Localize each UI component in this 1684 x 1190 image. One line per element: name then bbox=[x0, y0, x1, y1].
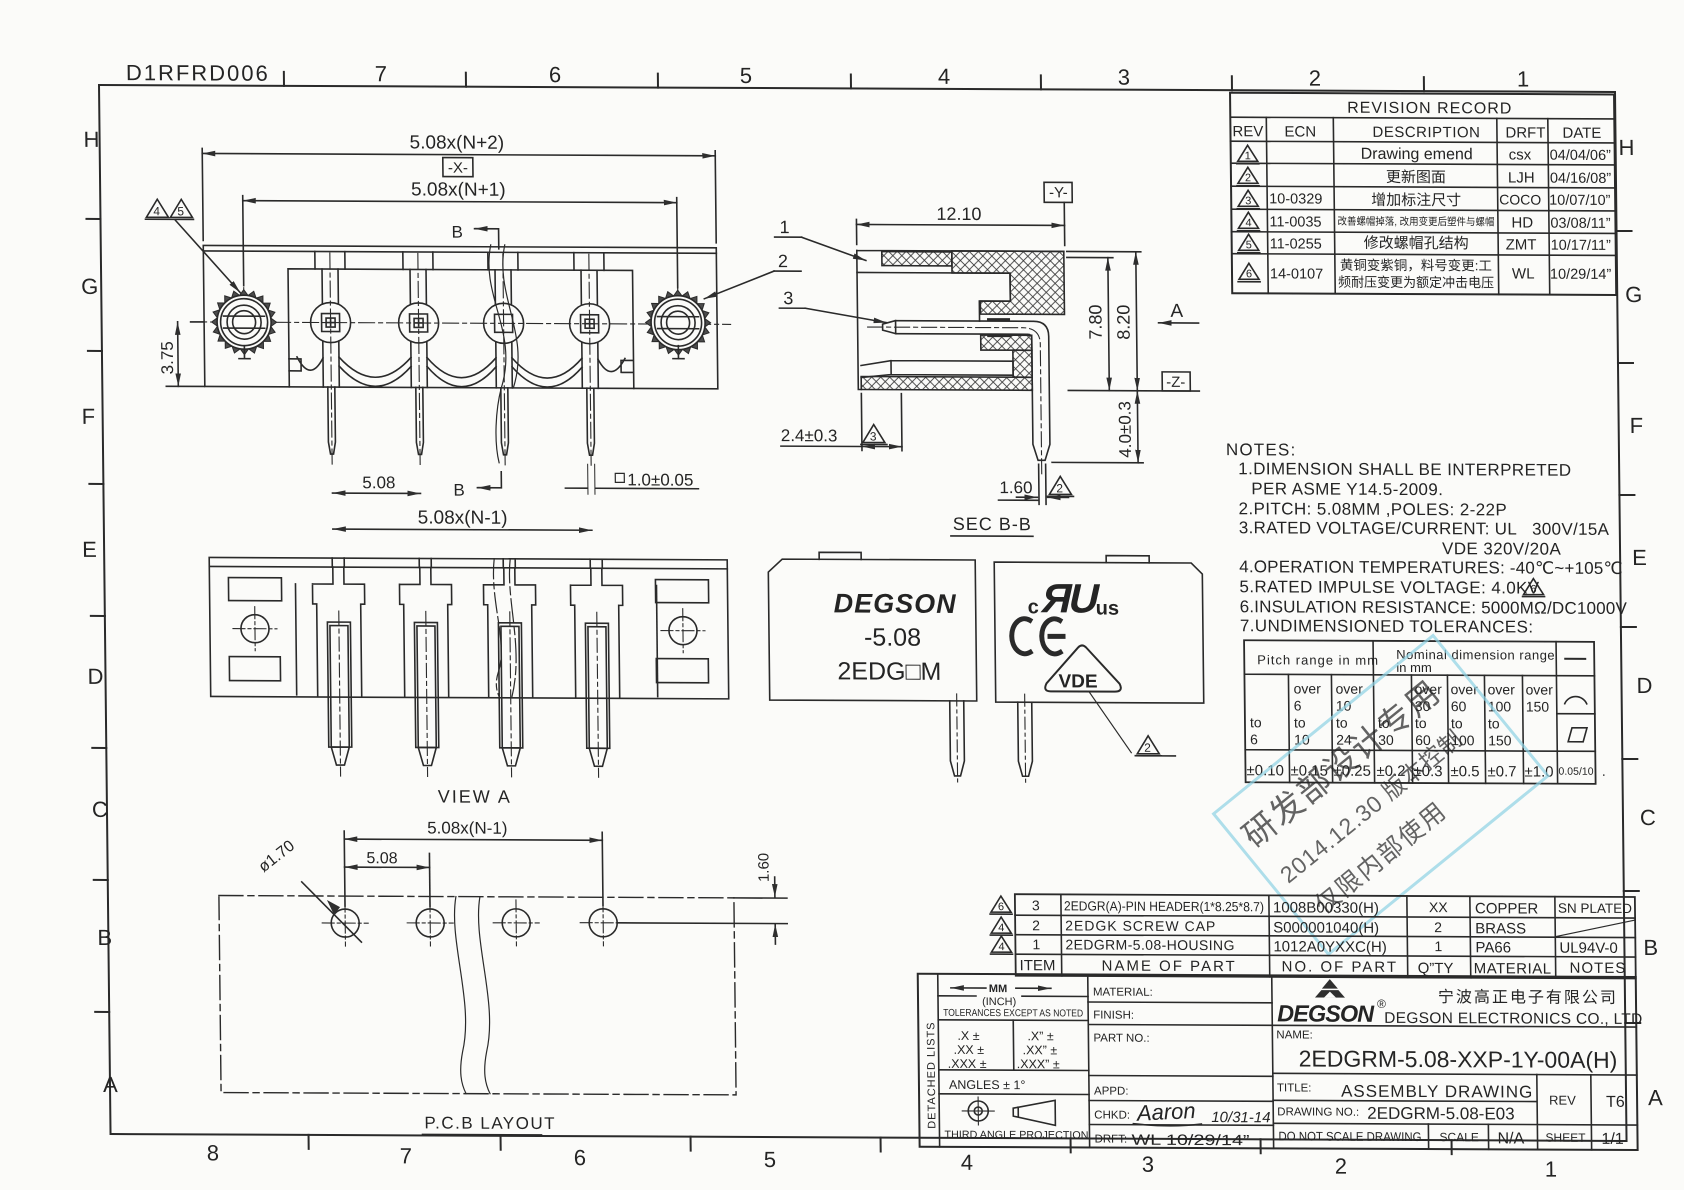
svg-text:ASSEMBLY DRAWING: ASSEMBLY DRAWING bbox=[1341, 1082, 1534, 1102]
svg-text:SHEET: SHEET bbox=[1545, 1131, 1586, 1145]
svg-text:ø1.70: ø1.70 bbox=[256, 837, 299, 876]
svg-text:A: A bbox=[1170, 301, 1183, 322]
svg-text:2EDGK SCREW CAP: 2EDGK SCREW CAP bbox=[1065, 917, 1216, 934]
svg-text:DESCRIPTION: DESCRIPTION bbox=[1372, 124, 1480, 141]
svg-text:DEGSON: DEGSON bbox=[1277, 1000, 1375, 1026]
svg-text:宁波高正电子有限公司: 宁波高正电子有限公司 bbox=[1438, 988, 1618, 1007]
svg-text:1: 1 bbox=[1545, 1157, 1558, 1182]
svg-text:4.OPERATION TEMPERATURES: -40: 4.OPERATION TEMPERATURES: -40℃~+105℃ bbox=[1239, 557, 1623, 578]
svg-text:(INCH): (INCH) bbox=[982, 996, 1016, 1008]
svg-text:5: 5 bbox=[740, 63, 753, 88]
svg-text:2EDGR(A)-PIN HEADER(1*8.25*8.7: 2EDGR(A)-PIN HEADER(1*8.25*8.7) bbox=[1064, 898, 1264, 914]
svg-text:6: 6 bbox=[1294, 697, 1302, 713]
svg-text:5.08x(N+2): 5.08x(N+2) bbox=[410, 132, 505, 153]
svg-text:ANGLES ± 1°: ANGLES ± 1° bbox=[949, 1078, 1026, 1092]
svg-text:SN PLATED: SN PLATED bbox=[1558, 901, 1632, 916]
svg-text:PER ASME Y14.5-2009.: PER ASME Y14.5-2009. bbox=[1251, 479, 1443, 499]
svg-text:over: over bbox=[1293, 680, 1321, 696]
svg-text:7.80: 7.80 bbox=[1085, 304, 1105, 339]
svg-text:2: 2 bbox=[1245, 172, 1251, 184]
svg-text:MATERIAL:: MATERIAL: bbox=[1093, 987, 1153, 999]
svg-text:VIEW A: VIEW A bbox=[438, 787, 512, 807]
svg-text:NAME:: NAME: bbox=[1276, 1029, 1313, 1041]
svg-text:7: 7 bbox=[375, 61, 388, 86]
svg-text:频耐压变更为额定冲击电压: 频耐压变更为额定冲击电压 bbox=[1338, 275, 1494, 291]
svg-text:更新图面: 更新图面 bbox=[1386, 169, 1446, 186]
svg-text:±0.5: ±0.5 bbox=[1450, 763, 1479, 780]
svg-text:4: 4 bbox=[998, 922, 1004, 934]
svg-text:B: B bbox=[451, 223, 463, 242]
svg-text:HD: HD bbox=[1511, 214, 1533, 231]
svg-text:to: to bbox=[1294, 714, 1306, 730]
svg-text:REV: REV bbox=[1549, 1093, 1576, 1108]
svg-text:增加标注尺寸: 增加标注尺寸 bbox=[1371, 192, 1461, 209]
svg-text:DETACHED LISTS: DETACHED LISTS bbox=[925, 1021, 938, 1128]
svg-text:®: ® bbox=[1377, 997, 1386, 1011]
svg-text:A: A bbox=[1648, 1085, 1663, 1110]
svg-text:WL: WL bbox=[1512, 265, 1535, 282]
svg-text:B: B bbox=[97, 925, 112, 950]
svg-text:H: H bbox=[1618, 135, 1634, 160]
svg-text:4: 4 bbox=[961, 1150, 974, 1175]
svg-text:XX: XX bbox=[1429, 899, 1449, 915]
svg-text:改善螺帽掉落, 改用变更后塑件与螺帽: 改善螺帽掉落, 改用变更后塑件与螺帽 bbox=[1337, 215, 1494, 229]
svg-text:2EDGRM-5.08-XXP-1Y-00A(H): 2EDGRM-5.08-XXP-1Y-00A(H) bbox=[1299, 1045, 1618, 1072]
svg-text:3.75: 3.75 bbox=[158, 341, 177, 374]
svg-text:3: 3 bbox=[1118, 65, 1131, 90]
svg-text:SCALE: SCALE bbox=[1439, 1130, 1479, 1144]
svg-text:6: 6 bbox=[1250, 731, 1258, 747]
svg-text:6: 6 bbox=[1530, 584, 1536, 596]
svg-text:C: C bbox=[1640, 805, 1656, 830]
svg-text:11-0255: 11-0255 bbox=[1270, 236, 1322, 252]
svg-text:1008B00330(H): 1008B00330(H) bbox=[1273, 899, 1379, 916]
svg-text:12.10: 12.10 bbox=[936, 204, 981, 224]
svg-text:over: over bbox=[1487, 681, 1515, 697]
svg-text:NOTES: NOTES bbox=[1570, 960, 1627, 977]
svg-text:5.08: 5.08 bbox=[366, 850, 397, 867]
svg-text:MATERIAL: MATERIAL bbox=[1474, 960, 1552, 977]
svg-text:D1RFRD006: D1RFRD006 bbox=[126, 60, 270, 86]
svg-text:11-0035: 11-0035 bbox=[1269, 214, 1321, 230]
svg-text:.X” ±: .X” ± bbox=[1027, 1029, 1054, 1043]
svg-text:8.20: 8.20 bbox=[1113, 305, 1133, 340]
svg-text:修改螺帽孔结构: 修改螺帽孔结构 bbox=[1364, 235, 1469, 252]
svg-text:2EDGRM-5.08-HOUSING: 2EDGRM-5.08-HOUSING bbox=[1065, 936, 1235, 953]
svg-text:4: 4 bbox=[1245, 217, 1251, 229]
svg-text:2: 2 bbox=[778, 251, 788, 271]
svg-text:3: 3 bbox=[1142, 1152, 1155, 1177]
svg-text:-Y-: -Y- bbox=[1049, 184, 1068, 201]
svg-text:5.08x(N-1): 5.08x(N-1) bbox=[427, 818, 508, 837]
svg-text:.XXX” ±: .XXX” ± bbox=[1017, 1057, 1060, 1071]
svg-text:6: 6 bbox=[998, 901, 1004, 913]
svg-text:±0.7: ±0.7 bbox=[1487, 763, 1516, 780]
svg-text:D: D bbox=[87, 664, 103, 689]
svg-text:DATE: DATE bbox=[1562, 125, 1601, 142]
svg-text:VDE 320V/20A: VDE 320V/20A bbox=[1442, 539, 1562, 559]
svg-text:2: 2 bbox=[1335, 1154, 1348, 1179]
svg-text:Drawing emend: Drawing emend bbox=[1361, 146, 1473, 164]
svg-text:A: A bbox=[103, 1072, 118, 1097]
svg-text:DEGSON: DEGSON bbox=[834, 588, 957, 619]
svg-text:1.DIMENSION SHALL BE INTERP: 1.DIMENSION SHALL BE INTERPRETED bbox=[1238, 459, 1572, 480]
svg-text:1: 1 bbox=[779, 217, 789, 237]
svg-text:6.INSULATION RESISTANCE: 5000: 6.INSULATION RESISTANCE: 5000MΩ/DC1000V bbox=[1240, 597, 1628, 618]
svg-text:3: 3 bbox=[870, 430, 877, 444]
svg-text:4: 4 bbox=[998, 941, 1004, 953]
svg-text:0.05/10: 0.05/10 bbox=[1558, 766, 1593, 778]
svg-text:NOTES:: NOTES: bbox=[1226, 440, 1297, 459]
svg-text:MM: MM bbox=[989, 983, 1007, 995]
svg-text:to: to bbox=[1336, 715, 1348, 731]
svg-text:7.UNDIMENSIONED TOLERANCES:: 7.UNDIMENSIONED TOLERANCES: bbox=[1240, 616, 1534, 636]
svg-text:5: 5 bbox=[177, 204, 184, 218]
svg-text:03/08/11”: 03/08/11” bbox=[1550, 216, 1611, 232]
svg-text:3: 3 bbox=[783, 288, 793, 308]
svg-text:NAME OF PART: NAME OF PART bbox=[1102, 958, 1237, 976]
svg-text:G: G bbox=[81, 274, 98, 299]
svg-text:5: 5 bbox=[764, 1147, 777, 1172]
svg-text:TOLERANCES EXCEPT AS NOTED: TOLERANCES EXCEPT AS NOTED bbox=[943, 1008, 1083, 1020]
svg-text:150: 150 bbox=[1488, 732, 1512, 748]
svg-text:04/04/06”: 04/04/06” bbox=[1550, 148, 1612, 164]
svg-text:2: 2 bbox=[1309, 66, 1322, 91]
svg-text:to: to bbox=[1488, 715, 1500, 731]
svg-text:us: us bbox=[1096, 598, 1120, 620]
svg-text:F: F bbox=[1630, 413, 1644, 438]
svg-text:2: 2 bbox=[1434, 919, 1442, 935]
svg-text:10-0329: 10-0329 bbox=[1269, 191, 1322, 207]
svg-text:.XX ±: .XX ± bbox=[953, 1043, 984, 1057]
svg-text:FINISH:: FINISH: bbox=[1093, 1010, 1134, 1022]
svg-text:-5.08: -5.08 bbox=[864, 623, 921, 651]
svg-text:4: 4 bbox=[938, 64, 951, 89]
svg-text:TITLE:: TITLE: bbox=[1277, 1082, 1312, 1094]
svg-text:COCO: COCO bbox=[1499, 191, 1541, 207]
svg-text:2: 2 bbox=[1032, 917, 1040, 933]
svg-text:Aaron: Aaron bbox=[1134, 1098, 1196, 1126]
svg-text:WL 10/29/14”: WL 10/29/14” bbox=[1131, 1132, 1249, 1150]
svg-text:E: E bbox=[82, 537, 97, 562]
svg-text:6: 6 bbox=[1246, 268, 1252, 280]
svg-text:Pitch range in mm: Pitch range in mm bbox=[1257, 652, 1379, 668]
svg-text:5.RATED IMPULSE VOLTAGE: 4.0: 5.RATED IMPULSE VOLTAGE: 4.0KV bbox=[1239, 577, 1540, 597]
svg-text:4.0±0.3: 4.0±0.3 bbox=[1115, 401, 1135, 458]
svg-text:P.C.B LAYOUT: P.C.B LAYOUT bbox=[424, 1113, 556, 1133]
svg-text:10/17/11”: 10/17/11” bbox=[1551, 238, 1612, 254]
svg-text:LJH: LJH bbox=[1508, 169, 1535, 186]
svg-text:5.08x(N-1): 5.08x(N-1) bbox=[418, 507, 508, 528]
svg-text:B: B bbox=[1643, 935, 1658, 960]
svg-text:COPPER: COPPER bbox=[1475, 900, 1539, 917]
svg-text:.XX” ±: .XX” ± bbox=[1022, 1043, 1057, 1057]
svg-text:6: 6 bbox=[574, 1145, 587, 1170]
svg-text:10/31-14: 10/31-14 bbox=[1211, 1109, 1270, 1126]
svg-text:黄铜变紫铜，料号变更:工: 黄铜变紫铜，料号变更:工 bbox=[1340, 258, 1492, 274]
svg-text:.XXX ±: .XXX ± bbox=[948, 1057, 987, 1071]
svg-text:S000001040(H): S000001040(H) bbox=[1273, 919, 1379, 936]
svg-text:2: 2 bbox=[1056, 481, 1063, 495]
svg-text:2.4±0.3: 2.4±0.3 bbox=[781, 426, 838, 445]
svg-text:5.08x(N+1): 5.08x(N+1) bbox=[411, 179, 506, 200]
svg-text:3.RATED VOLTAGE/CURRENT: UL: 3.RATED VOLTAGE/CURRENT: UL 300V/15A bbox=[1239, 518, 1610, 539]
svg-text:THIRD ANGLE PROJECTION: THIRD ANGLE PROJECTION bbox=[944, 1129, 1088, 1142]
svg-text:1012A0YXXC(H): 1012A0YXXC(H) bbox=[1273, 938, 1387, 956]
svg-text:SEC B-B: SEC B-B bbox=[953, 514, 1032, 534]
svg-text:DRFT: DRFT bbox=[1505, 124, 1545, 141]
svg-text:NO. OF PART: NO. OF PART bbox=[1282, 958, 1399, 976]
svg-text:PART NO.:: PART NO.: bbox=[1093, 1033, 1149, 1045]
svg-text:C: C bbox=[92, 797, 108, 822]
svg-text:3: 3 bbox=[1245, 195, 1251, 207]
svg-text:ITEM: ITEM bbox=[1020, 957, 1056, 974]
svg-text:to: to bbox=[1250, 714, 1262, 730]
svg-text:F: F bbox=[82, 404, 96, 429]
svg-text:·: · bbox=[1601, 766, 1606, 782]
svg-text:8: 8 bbox=[207, 1140, 220, 1165]
svg-text:1: 1 bbox=[1517, 67, 1530, 92]
svg-text:E: E bbox=[1632, 545, 1647, 570]
svg-text:csx: csx bbox=[1509, 146, 1532, 163]
svg-text:VDE: VDE bbox=[1058, 671, 1097, 692]
svg-text:APPD:: APPD: bbox=[1094, 1086, 1129, 1098]
svg-text:1.60: 1.60 bbox=[999, 478, 1032, 497]
svg-text:10/07/10”: 10/07/10” bbox=[1549, 193, 1611, 209]
svg-text:UL94V-0: UL94V-0 bbox=[1559, 940, 1618, 957]
svg-text:H: H bbox=[83, 127, 99, 152]
svg-text:14-0107: 14-0107 bbox=[1270, 266, 1323, 282]
svg-text:over: over bbox=[1525, 682, 1553, 698]
svg-text:.X ±: .X ± bbox=[957, 1029, 979, 1043]
svg-text:3: 3 bbox=[1032, 897, 1040, 913]
svg-text:6: 6 bbox=[549, 62, 562, 87]
svg-text:CHKD:: CHKD: bbox=[1094, 1110, 1130, 1122]
svg-text:7: 7 bbox=[400, 1143, 413, 1168]
svg-text:1: 1 bbox=[1434, 938, 1442, 954]
svg-text:5.08: 5.08 bbox=[362, 473, 395, 492]
svg-text:4: 4 bbox=[153, 204, 160, 218]
svg-text:ECN: ECN bbox=[1284, 123, 1316, 140]
svg-text:04/16/08”: 04/16/08” bbox=[1550, 171, 1612, 187]
svg-text:-X-: -X- bbox=[448, 160, 468, 177]
svg-text:DRAWING NO.:: DRAWING NO.: bbox=[1277, 1106, 1359, 1118]
svg-text:150: 150 bbox=[1526, 699, 1550, 715]
svg-text:10/29/14”: 10/29/14” bbox=[1550, 267, 1612, 283]
svg-text:BRASS: BRASS bbox=[1475, 920, 1526, 937]
svg-text:2.PITCH: 5.08MM ,POLES: 2-22P: 2.PITCH: 5.08MM ,POLES: 2-22P bbox=[1238, 499, 1507, 519]
svg-text:DRFT:: DRFT: bbox=[1094, 1134, 1127, 1146]
svg-text:1: 1 bbox=[1032, 936, 1040, 952]
svg-text:PA66: PA66 bbox=[1475, 939, 1511, 956]
svg-text:T6: T6 bbox=[1606, 1094, 1625, 1111]
svg-text:REV: REV bbox=[1232, 123, 1263, 140]
svg-text:REVISION RECORD: REVISION RECORD bbox=[1347, 100, 1512, 118]
svg-text:60: 60 bbox=[1451, 698, 1467, 714]
svg-text:DO NOT SCALE DRAWING: DO NOT SCALE DRAWING bbox=[1278, 1129, 1421, 1144]
svg-text:1: 1 bbox=[1245, 150, 1251, 162]
svg-text:N/A: N/A bbox=[1497, 1130, 1524, 1147]
svg-text:G: G bbox=[1625, 282, 1642, 307]
svg-text:1.60: 1.60 bbox=[755, 853, 772, 882]
svg-text:ZMT: ZMT bbox=[1506, 236, 1537, 253]
svg-text:c: c bbox=[1028, 596, 1039, 618]
svg-text:2: 2 bbox=[1144, 741, 1151, 755]
svg-text:Q”TY: Q”TY bbox=[1418, 960, 1454, 977]
svg-text:B: B bbox=[453, 481, 465, 500]
svg-text:2EDG□M: 2EDG□M bbox=[837, 657, 941, 685]
svg-text:D: D bbox=[1636, 673, 1652, 698]
svg-text:5: 5 bbox=[1246, 239, 1252, 251]
svg-text:2EDGRM-5.08-E03: 2EDGRM-5.08-E03 bbox=[1367, 1104, 1515, 1124]
svg-text:1/1: 1/1 bbox=[1601, 1131, 1624, 1148]
svg-text:1.0±0.05: 1.0±0.05 bbox=[627, 470, 693, 489]
svg-text:-Z-: -Z- bbox=[1166, 374, 1185, 391]
